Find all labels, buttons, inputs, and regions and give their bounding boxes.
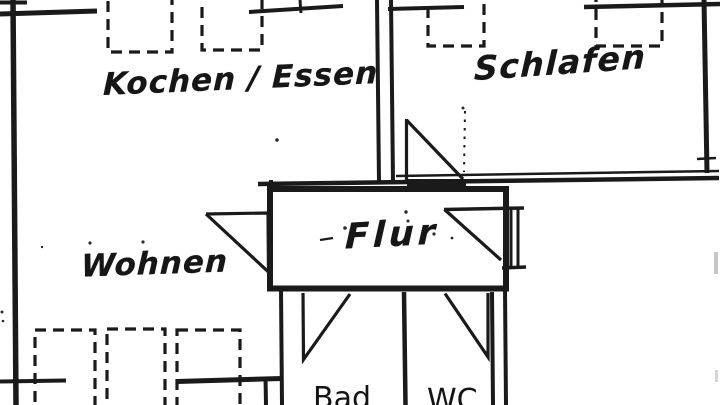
kitchen-unit-dashed-2 [202, 0, 262, 50]
door-reference-dotted-line [464, 111, 465, 172]
room-label-wc: WC [427, 386, 478, 405]
room-label-bad: Bad [313, 384, 371, 405]
door-threshold-schlafen [407, 179, 466, 190]
wall-top-schlafen-right [584, 4, 720, 7]
niche-bottom [502, 267, 526, 268]
wall-wc-right [492, 292, 493, 405]
furniture-dashed-3 [177, 330, 240, 405]
wall-bottom-right-segment [177, 379, 282, 382]
wall-bad-left [281, 289, 282, 405]
door-swing-bad [303, 293, 350, 360]
wall-schlafen-left-b [391, 0, 393, 182]
wall-right-outer [704, 0, 707, 173]
door-swing-schlafen [407, 119, 464, 181]
wall-bad-wc-divider [404, 292, 406, 405]
wall-bottom-left-segment [0, 381, 66, 382]
wall-top-schlafen-left [388, 7, 464, 9]
scan-edge-smudge-1 [714, 252, 718, 274]
scan-edge-smudge-2 [715, 370, 718, 382]
floor-plan: Kochen / Essen Schlafen Wohnen Flur Bad … [0, 0, 720, 405]
tick-right-wall [697, 158, 716, 159]
room-label-wohnen: Wohnen [81, 246, 229, 282]
kitchen-unit-dashed-1 [108, 0, 172, 52]
wall-under-schlafen-thin [396, 171, 719, 176]
wall-top-left [0, 11, 97, 14]
room-label-flur: Flur [344, 215, 439, 255]
wall-under-schlafen-thick [258, 178, 719, 184]
door-swing-wc [445, 293, 488, 357]
furniture-dashed-2 [107, 329, 165, 405]
furniture-dashed-1 [35, 330, 95, 405]
wall-left-outer [13, 0, 16, 405]
window-jamb-tick [300, 0, 301, 13]
wall-flur-right-lower [505, 289, 506, 405]
